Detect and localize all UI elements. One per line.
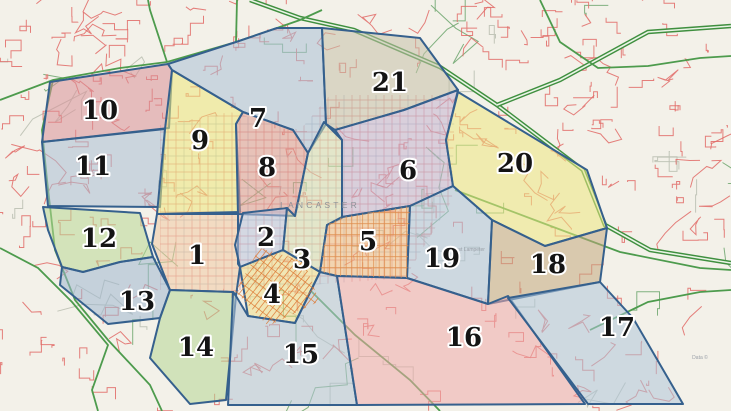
ward-3-number-label: 3 bbox=[293, 245, 311, 275]
ward-8-number-label: 8 bbox=[258, 153, 276, 183]
ward-2-number-label: 2 bbox=[257, 223, 275, 253]
ward-7-number-label: 7 bbox=[249, 104, 267, 134]
ward-17-number-label: 17 bbox=[599, 313, 635, 343]
ward-map-svg[interactable]: LANCASTERWest LampeterData ©101197821620… bbox=[0, 0, 731, 411]
ward-12-number-label: 12 bbox=[81, 224, 117, 254]
ward-5-number-label: 5 bbox=[359, 227, 377, 257]
ward-18-number-label: 18 bbox=[530, 250, 566, 280]
ward-4-number-label: 4 bbox=[263, 280, 281, 310]
ward-19-number-label: 19 bbox=[424, 244, 460, 274]
ward-16-number-label: 16 bbox=[446, 323, 482, 353]
ward-1-number-label: 1 bbox=[188, 241, 206, 271]
green-road bbox=[236, 0, 237, 42]
ward-10-number-label: 10 bbox=[82, 96, 118, 126]
ward-11-number-label: 11 bbox=[75, 152, 111, 182]
map-canvas[interactable]: LANCASTERWest LampeterData ©101197821620… bbox=[0, 0, 731, 411]
ward-13-number-label: 13 bbox=[119, 287, 155, 317]
ward-21-number-label: 21 bbox=[372, 68, 408, 98]
ward-20-number-label: 20 bbox=[497, 149, 533, 179]
city-name-label: LANCASTER bbox=[280, 200, 360, 210]
ward-14-number-label: 14 bbox=[178, 333, 214, 363]
street-squiggle bbox=[727, 125, 728, 128]
ward-15-number-label: 15 bbox=[283, 340, 319, 370]
ward-6-number-label: 6 bbox=[399, 156, 417, 186]
ward-9-number-label: 9 bbox=[191, 126, 209, 156]
attribution-label: Data © bbox=[692, 354, 708, 361]
